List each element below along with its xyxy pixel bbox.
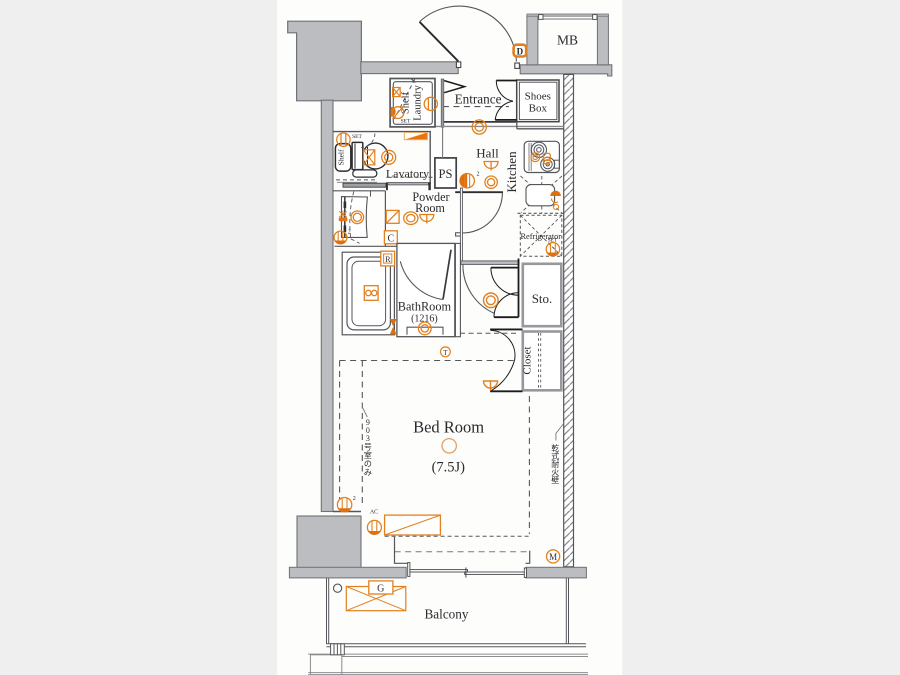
svg-text:AC: AC [370, 510, 378, 516]
svg-text:Hall: Hall [476, 145, 499, 160]
svg-text:Lavatory: Lavatory [386, 167, 429, 181]
svg-text:Shelf: Shelf [401, 91, 412, 114]
svg-text:Bed Room: Bed Room [413, 417, 484, 436]
svg-text:SET: SET [352, 134, 362, 140]
svg-text:Closet: Closet [522, 346, 534, 374]
svg-text:2: 2 [348, 230, 351, 236]
svg-text:Shoes: Shoes [525, 91, 551, 103]
svg-text:BathRoom: BathRoom [398, 300, 452, 314]
svg-text:み: み [364, 468, 372, 477]
svg-text:2: 2 [353, 496, 356, 502]
svg-text:MB: MB [557, 33, 578, 48]
svg-text:(1216): (1216) [411, 314, 438, 325]
svg-text:Kitchen: Kitchen [504, 151, 519, 193]
svg-text:Balcony: Balcony [425, 606, 469, 621]
svg-text:T: T [443, 349, 448, 357]
svg-text:SET: SET [401, 119, 411, 125]
svg-text:Entrance: Entrance [455, 92, 502, 107]
svg-text:2: 2 [477, 172, 480, 178]
svg-text:室: 室 [364, 450, 372, 460]
svg-text:(7.5J): (7.5J) [432, 460, 466, 476]
svg-text:Shelf: Shelf [337, 149, 346, 165]
svg-text:壁: 壁 [551, 475, 559, 485]
svg-text:PS: PS [439, 167, 453, 181]
svg-text:M: M [549, 552, 557, 562]
svg-text:Room: Room [415, 201, 445, 215]
svg-text:D: D [517, 47, 524, 57]
svg-text:Sto.: Sto. [532, 291, 553, 306]
svg-text:R: R [385, 255, 391, 264]
svg-text:Laundry: Laundry [413, 84, 424, 120]
svg-text:C: C [387, 234, 394, 245]
svg-text:Box: Box [529, 103, 548, 115]
svg-text:G: G [377, 584, 384, 595]
